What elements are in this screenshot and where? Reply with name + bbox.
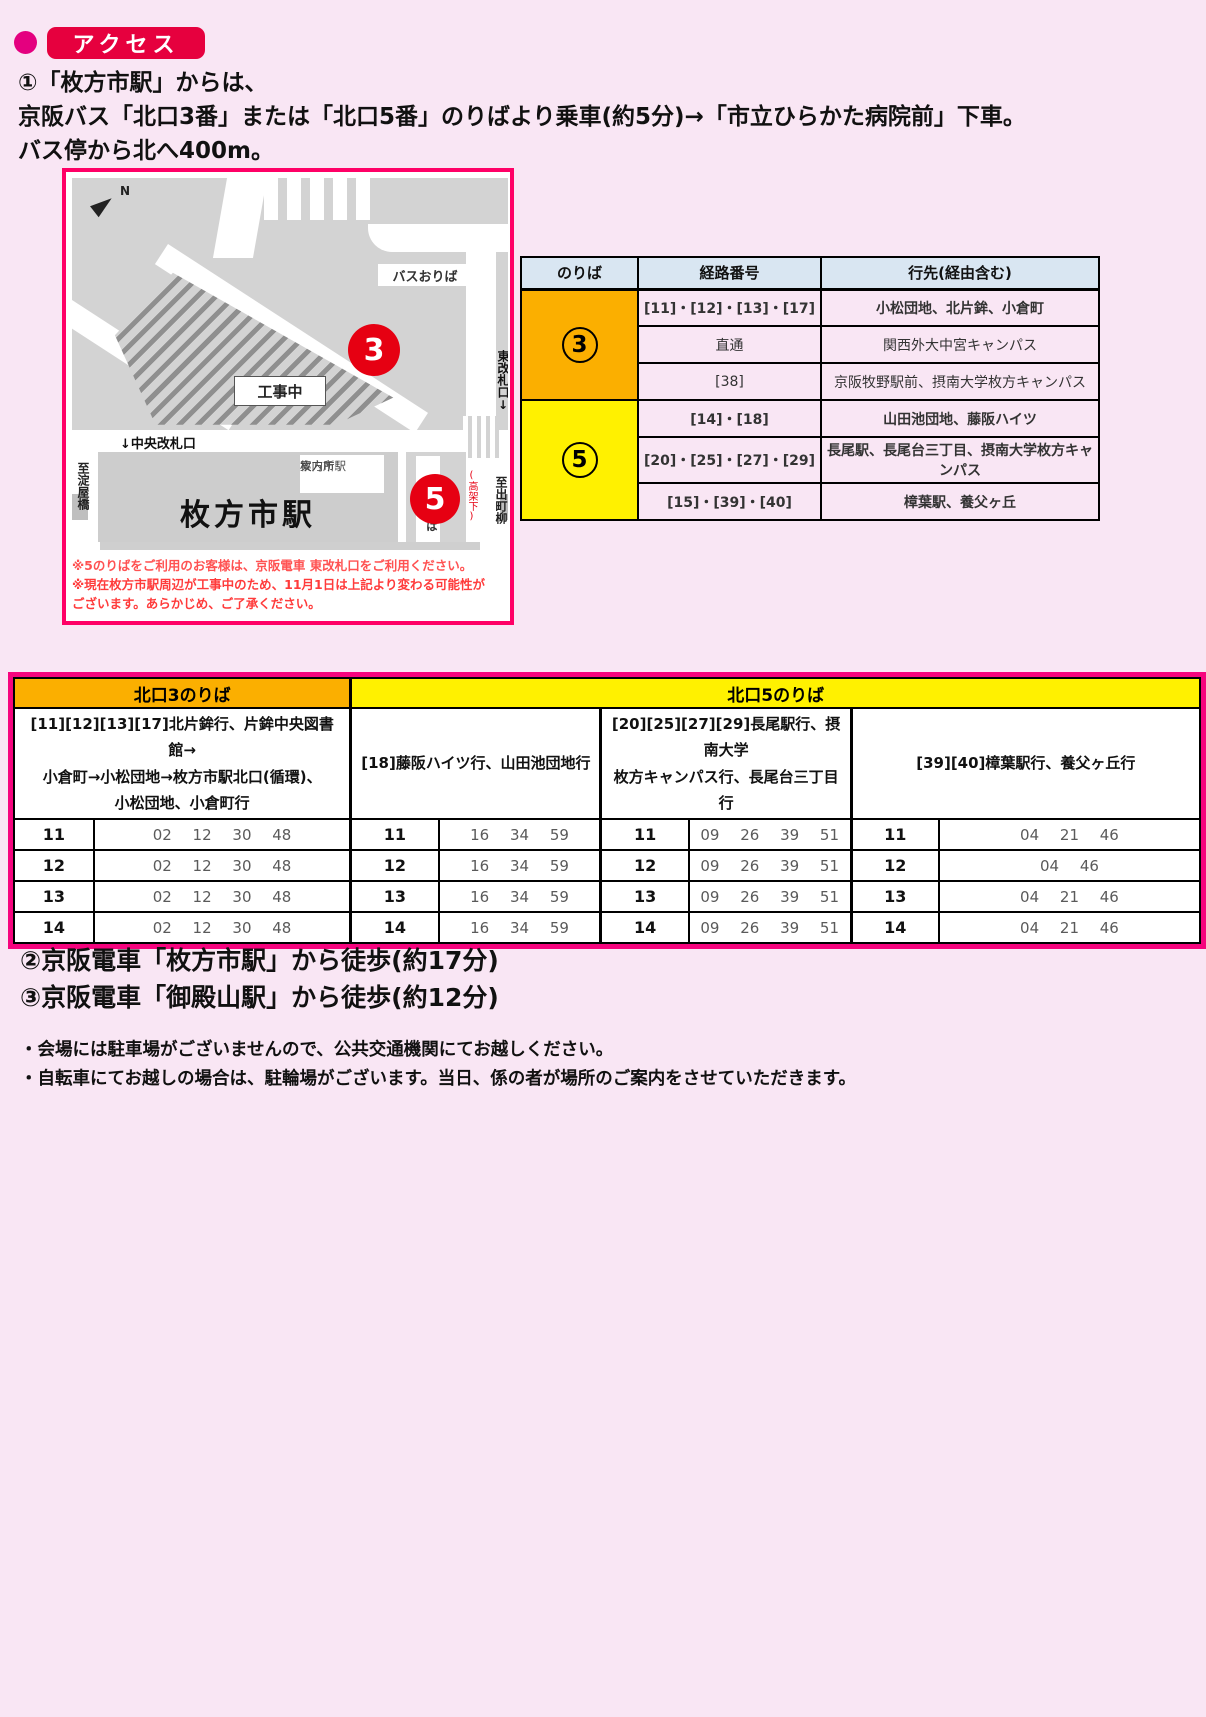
hour-cell: 12	[851, 850, 939, 881]
timetable-row: 11 02 12 30 48 11 16 34 59 11 09 26 39 5…	[14, 819, 1200, 850]
intro-line-3: バス停から北へ400m。	[18, 134, 1026, 168]
dest-cell: 長尾駅、長尾台三丁目、摂南大学枚方キャンパス	[821, 437, 1099, 483]
minutes-cell: 04 21 46	[939, 881, 1200, 912]
timetable-row: 13 02 12 30 48 13 16 34 59 13 09 26 39 5…	[14, 881, 1200, 912]
map-note-2: ※現在枚方市駅周辺が工事中のため、11月1日は上記より変わる可能性が	[72, 575, 504, 594]
hour-cell: 13	[851, 881, 939, 912]
station-map-canvas: 工事中 バスおりば 3 東改札口↓ ↓中央改札口 枚方市駅 案内所 枚方市駅 バ…	[72, 178, 508, 550]
minutes-cell: 09 26 39 51	[689, 912, 851, 943]
bus-dropoff-label-top: バスおりば	[378, 264, 472, 286]
bus-stop-5-marker: 5	[410, 474, 460, 524]
hour-cell: 11	[851, 819, 939, 850]
footer-note-1: ・会場には駐車場がございませんので、公共交通機関にてお越しください。	[20, 1036, 856, 1065]
route-table-header-row: のりば 経路番号 行先(経由含む)	[521, 257, 1099, 289]
route-table: のりば 経路番号 行先(経由含む) 3 [11]・[12]・[13]・[17] …	[520, 256, 1100, 521]
hour-cell: 14	[14, 912, 94, 943]
map-notes: ※5のりばをご利用のお客様は、京阪電車 東改札口をご利用ください。 ※現在枚方市…	[72, 556, 504, 613]
minutes-cell: 16 34 59	[439, 881, 601, 912]
minutes-cell: 04 21 46	[939, 912, 1200, 943]
station-info-line-2: 案内所	[300, 459, 335, 473]
walking-directions: ②京阪電車「枚方市駅」から徒歩(約17分) ③京阪電車「御殿山駅」から徒歩(約1…	[20, 942, 499, 1016]
dest-cell: 小松団地、北片鉾、小倉町	[821, 289, 1099, 326]
minutes-cell: 02 12 30 48	[94, 912, 351, 943]
minutes-cell: 04 21 46	[939, 819, 1200, 850]
minutes-cell: 04 46	[939, 850, 1200, 881]
station-info-box: 枚方市駅 案内所	[300, 455, 384, 493]
minutes-cell: 16 34 59	[439, 912, 601, 943]
hour-cell: 12	[14, 850, 94, 881]
section-bullet-icon	[14, 31, 37, 54]
stop-5-number: 5	[562, 442, 598, 478]
walk-line-1: ②京阪電車「枚方市駅」から徒歩(約17分)	[20, 942, 499, 979]
to-yodoyabashi-label: 至淀屋橋	[75, 462, 92, 510]
table-row: 3 [11]・[12]・[13]・[17] 小松団地、北片鉾、小倉町	[521, 289, 1099, 326]
minutes-cell: 16 34 59	[439, 819, 601, 850]
walk-line-2: ③京阪電車「御殿山駅」から徒歩(約12分)	[20, 979, 499, 1016]
north-label: N	[120, 184, 130, 198]
route-cell: [14]・[18]	[638, 400, 821, 437]
north3-header: 北口3のりば	[14, 678, 351, 708]
minutes-cell: 09 26 39 51	[689, 881, 851, 912]
timetable-row: 12 02 12 30 48 12 16 34 59 12 09 26 39 5…	[14, 850, 1200, 881]
intro-line-2: 京阪バス「北口3番」または「北口5番」のりばより乗車(約5分)→「市立ひらかた病…	[18, 100, 1026, 134]
timetable-row: 14 02 12 30 48 14 16 34 59 14 09 26 39 5…	[14, 912, 1200, 943]
col-header-dest: 行先(経由含む)	[821, 257, 1099, 289]
route-cell: [20]・[25]・[27]・[29]	[638, 437, 821, 483]
footer-notes: ・会場には駐車場がございませんので、公共交通機関にてお越しください。 ・自転車に…	[20, 1036, 856, 1094]
intro-line-1: ①「枚方市駅」からは、	[18, 66, 1026, 100]
hour-cell: 11	[351, 819, 439, 850]
minutes-cell: 02 12 30 48	[94, 850, 351, 881]
stop-3-cell: 3	[521, 289, 638, 400]
construction-label: 工事中	[234, 376, 326, 406]
footer-note-2: ・自転車にてお越しの場合は、駐輪場がございます。当日、係の者が場所のご案内をさせ…	[20, 1065, 856, 1094]
group-desc: [11][12][13][17]北片鉾行、片鉾中央図書館→ 小倉町→小松団地→枚…	[14, 708, 351, 819]
to-demachiyanagi-label: 至出町柳	[493, 476, 508, 524]
hour-cell: 13	[14, 881, 94, 912]
dest-cell: 京阪牧野駅前、摂南大学枚方キャンパス	[821, 363, 1099, 400]
platform-strip	[100, 542, 480, 550]
timetable-desc-row: [11][12][13][17]北片鉾行、片鉾中央図書館→ 小倉町→小松団地→枚…	[14, 708, 1200, 819]
minutes-cell: 09 26 39 51	[689, 819, 851, 850]
route-cell: [38]	[638, 363, 821, 400]
road-top	[213, 178, 267, 258]
timetable: 北口3のりば 北口5のりば [11][12][13][17]北片鉾行、片鉾中央図…	[8, 672, 1206, 949]
group-desc: [18]藤阪ハイツ行、山田池団地行	[351, 708, 601, 819]
route-cell: [15]・[39]・[40]	[638, 483, 821, 520]
stop-5-cell: 5	[521, 400, 638, 520]
north5-header: 北口5のりば	[351, 678, 1200, 708]
group-desc: [20][25][27][29]長尾駅行、摂南大学 枚方キャンパス行、長尾台三丁…	[601, 708, 851, 819]
hour-cell: 12	[601, 850, 689, 881]
col-header-route: 経路番号	[638, 257, 821, 289]
minutes-cell: 16 34 59	[439, 850, 601, 881]
under-viaduct-label: (高架下)	[464, 470, 479, 522]
minutes-cell: 02 12 30 48	[94, 881, 351, 912]
east-gate-label: 東改札口↓	[495, 350, 508, 412]
minutes-cell: 09 26 39 51	[689, 850, 851, 881]
intro-text: ①「枚方市駅」からは、 京阪バス「北口3番」または「北口5番」のりばより乗車(約…	[18, 66, 1026, 168]
hour-cell: 14	[851, 912, 939, 943]
route-cell: [11]・[12]・[13]・[17]	[638, 289, 821, 326]
route-cell: 直通	[638, 326, 821, 363]
station-map: 工事中 バスおりば 3 東改札口↓ ↓中央改札口 枚方市駅 案内所 枚方市駅 バ…	[62, 168, 514, 625]
hour-cell: 11	[14, 819, 94, 850]
dest-cell: 山田池団地、藤阪ハイツ	[821, 400, 1099, 437]
minutes-cell: 02 12 30 48	[94, 819, 351, 850]
map-note-1: ※5のりばをご利用のお客様は、京阪電車 東改札口をご利用ください。	[72, 556, 504, 575]
stop-3-number: 3	[562, 327, 598, 363]
hour-cell: 14	[351, 912, 439, 943]
north-compass-icon: N	[86, 184, 146, 224]
bus-stop-3-marker: 3	[348, 324, 400, 376]
crosswalk-right	[463, 416, 499, 458]
dest-cell: 関西外大中宮キャンパス	[821, 326, 1099, 363]
hour-cell: 13	[351, 881, 439, 912]
crosswalk-top	[264, 178, 372, 220]
access-flyer-page: アクセス ①「枚方市駅」からは、 京阪バス「北口3番」または「北口5番」のりばよ…	[0, 0, 1206, 1717]
hour-cell: 14	[601, 912, 689, 943]
table-row: 5 [14]・[18] 山田池団地、藤阪ハイツ	[521, 400, 1099, 437]
map-note-3: ございます。あらかじめ、ご了承ください。	[72, 594, 504, 613]
section-title: アクセス	[47, 27, 205, 59]
hour-cell: 13	[601, 881, 689, 912]
group-desc: [39][40]樟葉駅行、養父ヶ丘行	[851, 708, 1200, 819]
station-name-label: 枚方市駅	[118, 490, 378, 534]
timetable-header-row: 北口3のりば 北口5のりば	[14, 678, 1200, 708]
dest-cell: 樟葉駅、養父ヶ丘	[821, 483, 1099, 520]
col-header-stop: のりば	[521, 257, 638, 289]
hour-cell: 12	[351, 850, 439, 881]
central-gate-label: ↓中央改札口	[120, 433, 196, 452]
hour-cell: 11	[601, 819, 689, 850]
